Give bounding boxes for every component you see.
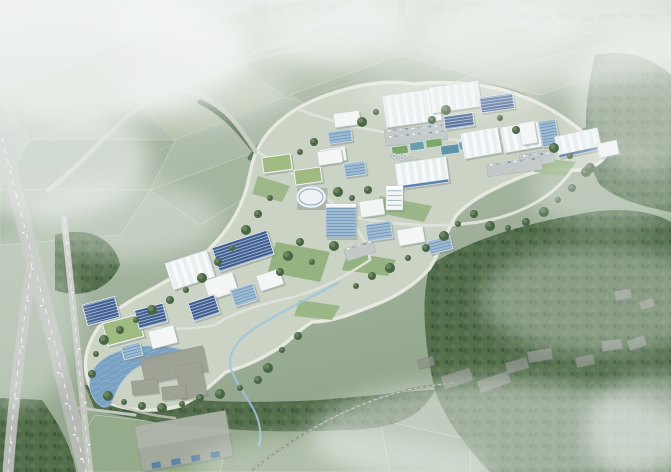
tree-highlight: [139, 403, 143, 407]
car-dot: [78, 348, 81, 349]
tree-highlight: [455, 221, 458, 224]
tree-highlight: [237, 385, 240, 388]
car-dot: [406, 134, 409, 135]
car-dot: [435, 131, 438, 132]
car-dot: [389, 136, 392, 137]
clarifier-center: [409, 159, 411, 161]
car-dot: [358, 245, 361, 246]
car-dot: [411, 128, 414, 129]
building-body: [518, 121, 538, 145]
car-dot: [73, 434, 76, 435]
car-dot: [429, 126, 432, 127]
court: [410, 141, 425, 151]
tree-highlight: [93, 351, 96, 354]
clarifier-center: [401, 157, 403, 159]
tree-highlight: [365, 187, 369, 191]
tree-highlight: [358, 118, 364, 124]
car-dot: [490, 164, 493, 165]
tree-highlight: [405, 255, 408, 258]
car-dot: [523, 155, 526, 156]
tree-highlight: [386, 264, 392, 270]
tree-highlight: [104, 392, 110, 398]
car-dot: [430, 132, 433, 133]
building-body: [131, 379, 158, 396]
tree-highlight: [158, 404, 164, 410]
tower-cap: [386, 186, 403, 189]
car-dot: [546, 153, 549, 154]
glass-facade: [366, 221, 392, 241]
tower-cap: [326, 204, 356, 208]
car-dot: [401, 135, 404, 136]
building-glasstower: [326, 204, 357, 240]
tree-highlight: [167, 297, 171, 301]
car-dot: [540, 153, 543, 154]
clarifier-center: [393, 155, 395, 157]
tree-highlight: [216, 390, 222, 396]
tree-highlight: [311, 139, 315, 143]
tree-highlight: [334, 188, 340, 194]
car-dot: [526, 159, 529, 160]
building-round: [296, 186, 327, 210]
car-dot: [424, 132, 427, 133]
rendering-canvas: [0, 0, 671, 472]
horizon-haze: [0, 0, 671, 115]
car-dot: [65, 403, 68, 404]
car-dot: [532, 158, 535, 159]
car-dot: [80, 458, 83, 459]
tree-highlight: [513, 127, 517, 131]
tree-highlight: [440, 232, 446, 238]
tree-highlight: [121, 399, 124, 402]
car-dot: [395, 135, 398, 136]
tree-highlight: [133, 317, 136, 320]
tree-highlight: [215, 259, 219, 263]
car-dot: [496, 163, 499, 164]
tree-highlight: [284, 252, 290, 258]
tree-highlight: [297, 239, 301, 243]
tree-highlight: [242, 226, 248, 232]
car-dot: [352, 246, 355, 247]
tree-highlight: [264, 364, 270, 370]
tree-highlight: [423, 245, 427, 249]
tree-highlight: [330, 242, 336, 248]
car-dot: [434, 125, 437, 126]
car-dot: [363, 243, 366, 244]
tree-highlight: [550, 144, 556, 150]
building-glass: [343, 160, 368, 179]
tree-highlight: [179, 401, 182, 404]
tree-highlight: [523, 219, 527, 223]
tree-highlight: [255, 377, 259, 381]
court-surface: [410, 141, 425, 151]
car-dot: [441, 131, 444, 132]
tree-highlight: [297, 149, 300, 152]
car-dot: [405, 128, 408, 129]
car-dot: [369, 242, 372, 243]
car-dot: [10, 442, 13, 443]
car-dot: [529, 154, 532, 155]
tree-highlight: [183, 287, 186, 290]
car-dot: [423, 126, 426, 127]
tree-highlight: [197, 395, 201, 399]
car-dot: [535, 154, 538, 155]
building-gray: [161, 385, 188, 403]
building-body: [161, 385, 186, 400]
tree-highlight: [277, 269, 281, 273]
tree-highlight: [309, 259, 312, 262]
tree-highlight: [198, 274, 204, 280]
building-glass: [365, 220, 395, 244]
aerial-rendering: [0, 0, 671, 472]
car-dot: [514, 161, 517, 162]
car-dot: [388, 130, 391, 131]
car-dot: [417, 127, 420, 128]
tree-highlight: [89, 371, 93, 375]
building-white: [359, 198, 387, 219]
tree-highlight: [369, 273, 373, 277]
tree-highlight: [279, 347, 282, 350]
tree-highlight: [100, 336, 106, 342]
car-dot: [508, 162, 511, 163]
building-tower: [386, 186, 404, 212]
car-dot: [412, 134, 415, 135]
car-dot: [418, 133, 421, 134]
tree-highlight: [486, 222, 492, 228]
car-dot: [400, 129, 403, 130]
building-gray: [131, 379, 160, 398]
tree-highlight: [148, 306, 154, 312]
tree-highlight: [267, 195, 270, 198]
tree-highlight: [349, 195, 352, 198]
tree-highlight: [505, 225, 508, 228]
car-dot: [84, 402, 87, 403]
building-body: [359, 198, 385, 217]
tree-highlight: [117, 327, 121, 331]
car-dot: [520, 160, 523, 161]
tree-highlight: [295, 333, 299, 337]
building-body: [386, 186, 403, 210]
tree-highlight: [229, 245, 232, 248]
car-dot: [394, 129, 397, 130]
car-dot: [88, 444, 91, 445]
tree-highlight: [471, 211, 475, 215]
car-dot: [502, 162, 505, 163]
tree-highlight: [353, 283, 356, 286]
tree-highlight: [255, 211, 259, 215]
glass-tower-facade: [327, 208, 356, 238]
car-dot: [347, 248, 350, 249]
building-body: [317, 148, 343, 165]
